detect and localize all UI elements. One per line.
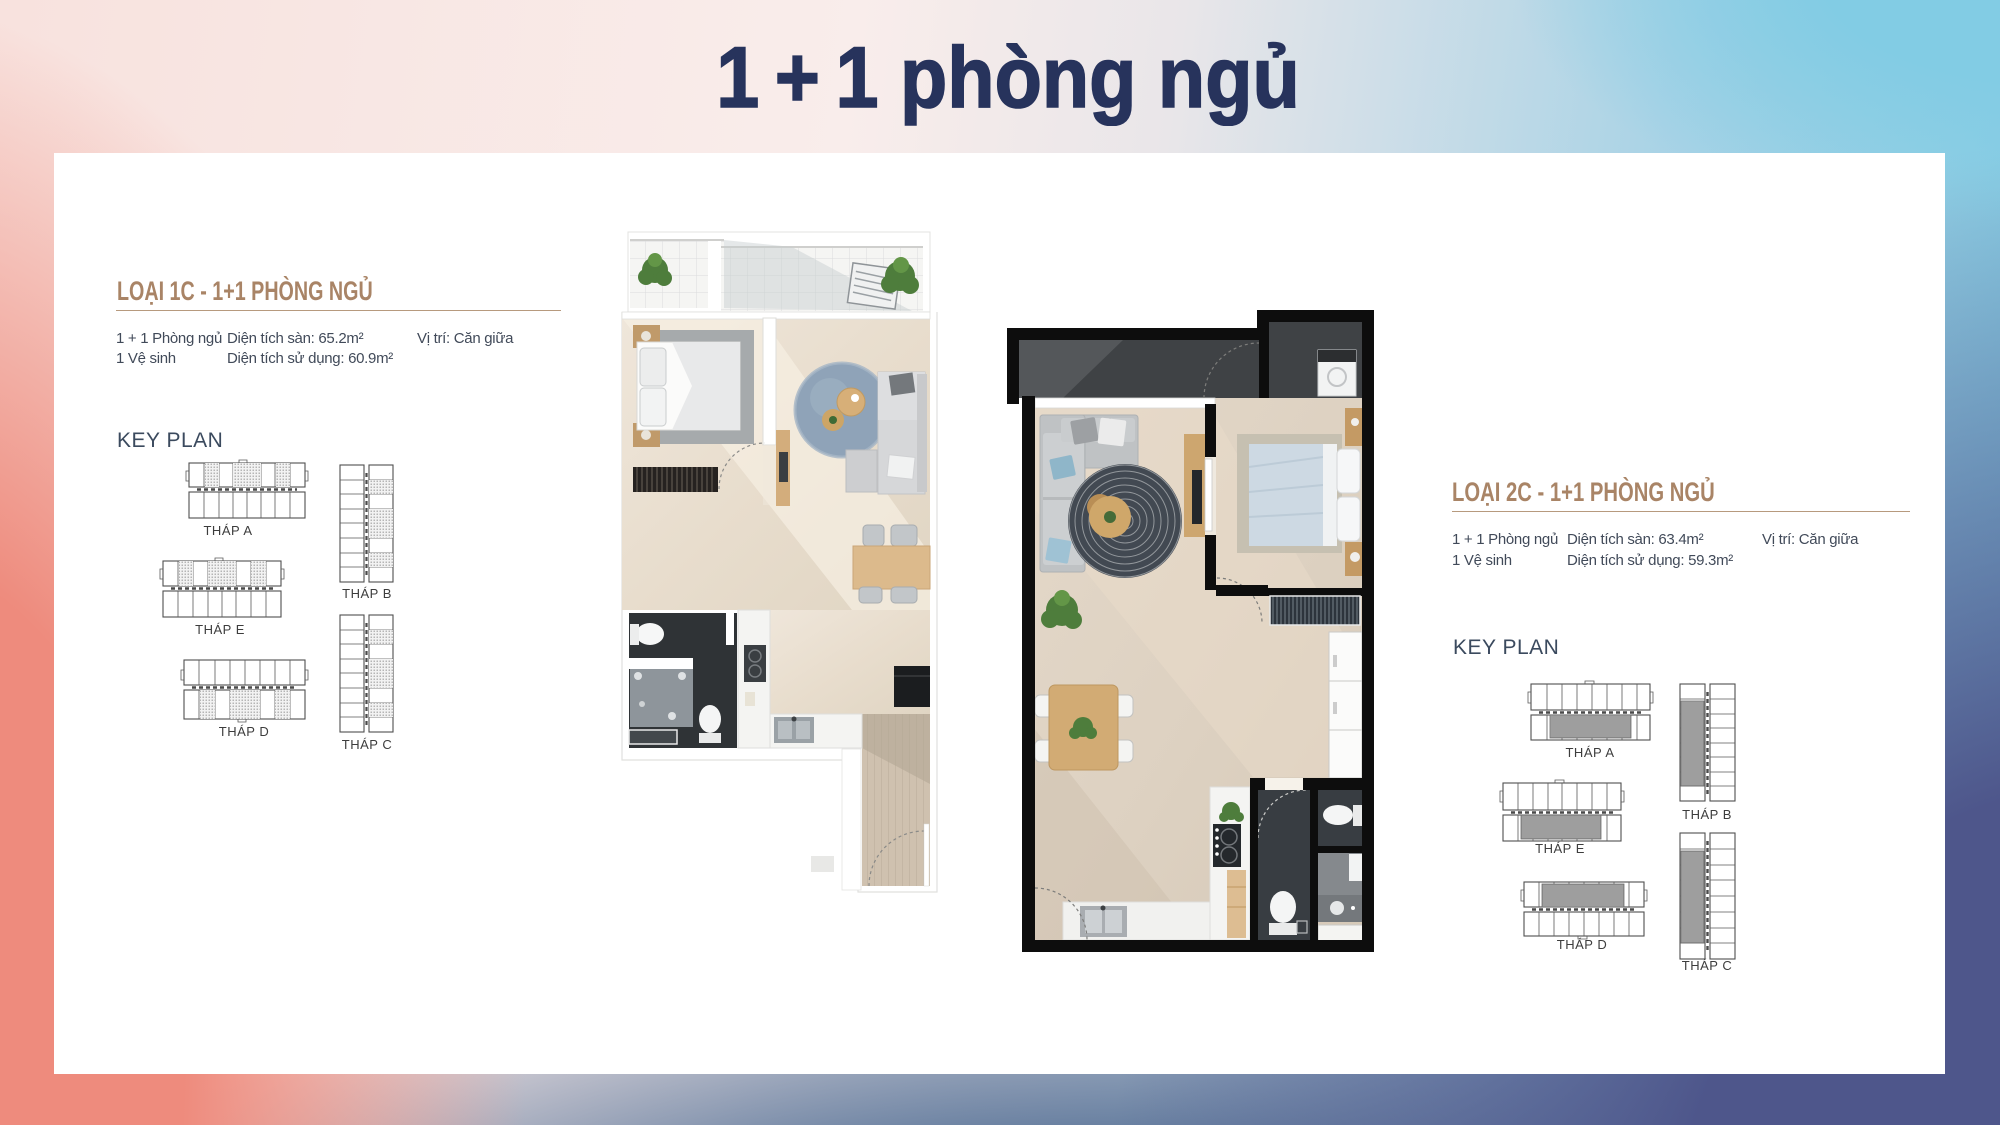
svg-text:THÁP C: THÁP C bbox=[342, 737, 392, 752]
svg-text:THÁP B: THÁP B bbox=[1682, 807, 1732, 822]
svg-text:THÁP D: THÁP D bbox=[1557, 937, 1607, 952]
svg-text:THÁP A: THÁP A bbox=[203, 523, 252, 538]
svg-text:THÁP E: THÁP E bbox=[195, 622, 245, 637]
svg-text:THÁP D: THÁP D bbox=[219, 724, 269, 739]
svg-text:THÁP C: THÁP C bbox=[1682, 958, 1732, 973]
svg-text:THÁP B: THÁP B bbox=[342, 586, 392, 601]
svg-text:THÁP A: THÁP A bbox=[1565, 745, 1614, 760]
svg-text:THÁP E: THÁP E bbox=[1535, 841, 1585, 856]
